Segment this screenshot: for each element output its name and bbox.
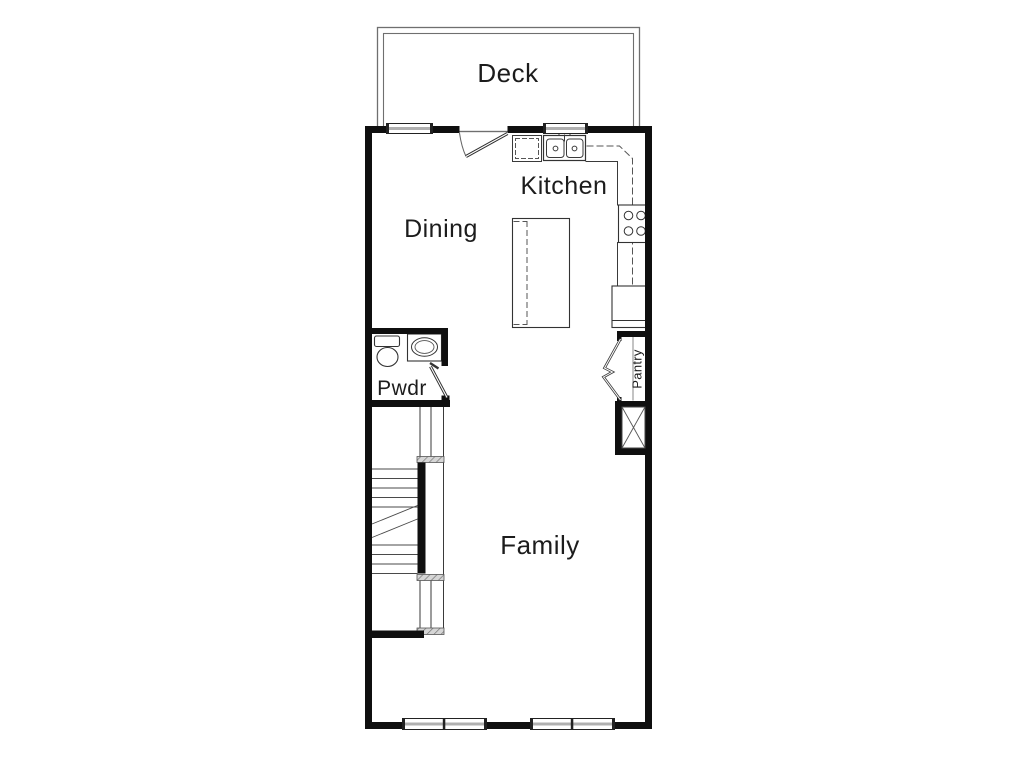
stair-wall bbox=[418, 463, 426, 574]
floorplan-page: Deck Kitchen Dining Pwdr Pantry Family bbox=[0, 0, 1024, 768]
room-label-pantry: Pantry bbox=[630, 349, 645, 389]
powder-wall-top bbox=[365, 328, 448, 334]
pantry-bifold-door-icon bbox=[604, 339, 621, 400]
window-icon-family-left bbox=[403, 719, 487, 730]
room-label-deck: Deck bbox=[477, 58, 539, 88]
stair-treads bbox=[372, 469, 418, 574]
vanity-sink-icon bbox=[408, 334, 442, 361]
kitchen-island-icon bbox=[513, 219, 570, 328]
room-label-family: Family bbox=[500, 530, 580, 560]
room-label-powder: Pwdr bbox=[377, 377, 427, 400]
stair-break-line bbox=[372, 506, 418, 525]
pantry-wall-top bbox=[617, 331, 645, 337]
cooktop-4-burner-icon bbox=[619, 205, 649, 243]
entry-door-swing-icon bbox=[460, 133, 508, 157]
rail-cap bbox=[417, 575, 444, 581]
dishwasher-icon bbox=[513, 136, 542, 162]
powder-room-fixtures bbox=[375, 334, 442, 367]
window-icon-family-right bbox=[531, 719, 615, 730]
exterior-wall-left bbox=[365, 126, 372, 729]
powder-door-swing-icon bbox=[430, 363, 447, 398]
rail-cap bbox=[417, 457, 444, 463]
chase-wall-left bbox=[615, 401, 622, 455]
powder-wall-right bbox=[442, 328, 449, 366]
refrigerator-icon bbox=[612, 286, 648, 328]
powder-wall-bottom bbox=[365, 400, 450, 407]
room-label-dining: Dining bbox=[404, 215, 478, 243]
x-chase-icon bbox=[622, 407, 645, 448]
double-basin-sink-icon bbox=[544, 133, 586, 161]
stair-wall-bottom bbox=[365, 631, 424, 639]
toilet-icon bbox=[375, 336, 400, 367]
floorplan-canvas: Deck Kitchen Dining Pwdr Pantry Family bbox=[0, 0, 1024, 768]
chase-wall-bottom bbox=[615, 448, 652, 455]
staircase-icon bbox=[372, 407, 444, 635]
exterior-wall-right bbox=[645, 126, 652, 729]
window-icon-kitchen bbox=[544, 124, 588, 134]
room-label-kitchen: Kitchen bbox=[521, 172, 608, 200]
stair-break-line bbox=[372, 519, 418, 538]
window-icon-top-left bbox=[387, 124, 433, 134]
